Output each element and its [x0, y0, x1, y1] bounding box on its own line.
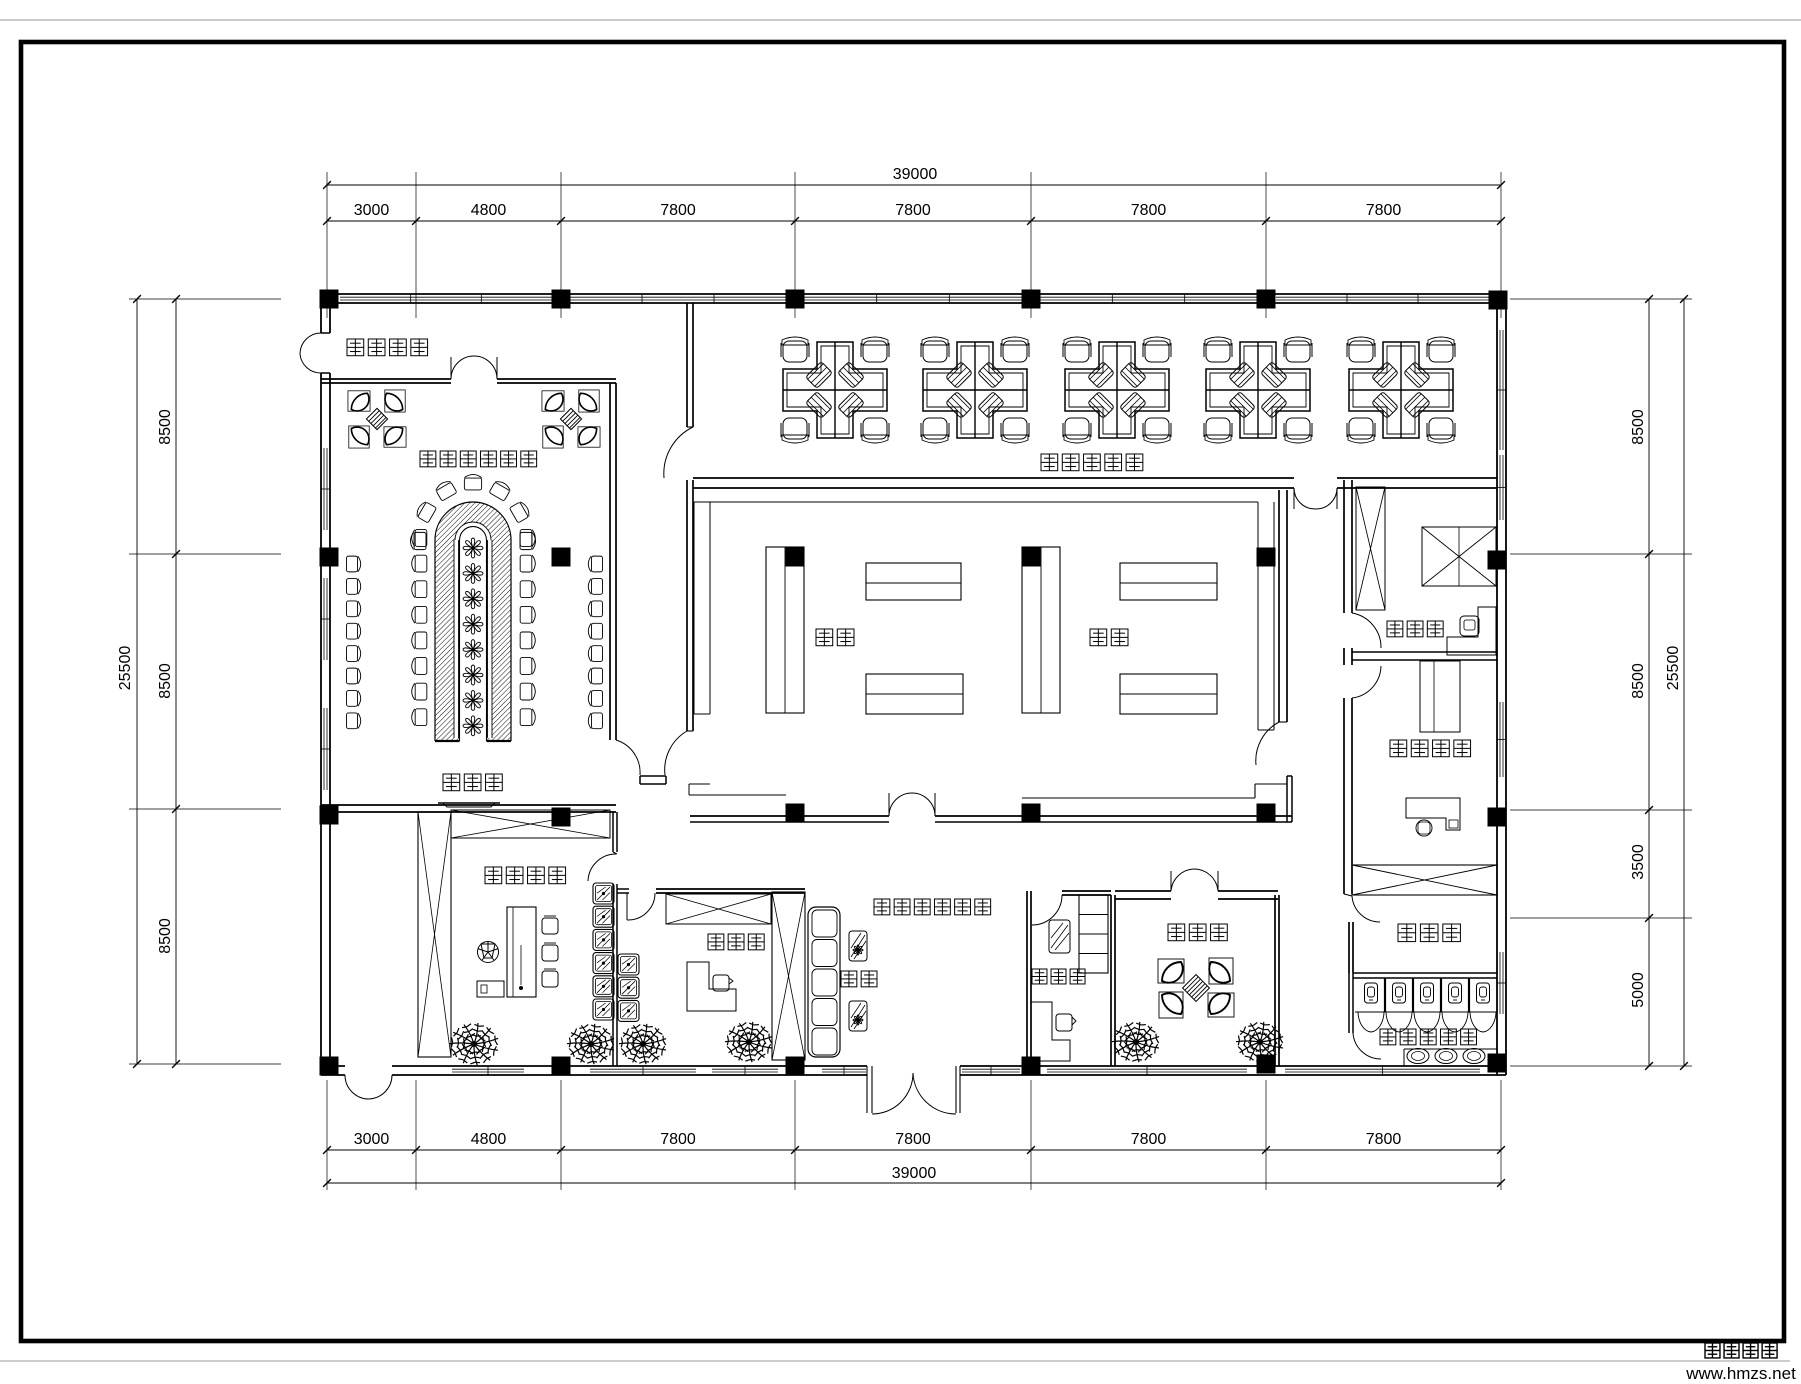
svg-text:3000: 3000 [354, 202, 390, 219]
svg-text:39000: 39000 [892, 1165, 937, 1182]
svg-text:7800: 7800 [895, 202, 931, 219]
svg-text:4800: 4800 [471, 202, 507, 219]
svg-text:7800: 7800 [895, 1131, 931, 1148]
svg-text:39000: 39000 [893, 166, 938, 183]
svg-text:7800: 7800 [1131, 202, 1167, 219]
svg-text:3000: 3000 [354, 1131, 390, 1148]
svg-text:8500: 8500 [1630, 663, 1647, 699]
svg-text:25500: 25500 [117, 646, 134, 691]
svg-text:7800: 7800 [1366, 1131, 1402, 1148]
svg-text:25500: 25500 [1665, 646, 1682, 691]
svg-text:8500: 8500 [1630, 409, 1647, 445]
svg-text:8500: 8500 [157, 918, 174, 954]
svg-text:7800: 7800 [1366, 202, 1402, 219]
svg-text:5000: 5000 [1630, 972, 1647, 1008]
svg-text:8500: 8500 [157, 409, 174, 445]
svg-text:4800: 4800 [471, 1131, 507, 1148]
svg-text:7800: 7800 [660, 202, 696, 219]
svg-text:www.hmzs.net: www.hmzs.net [1685, 1364, 1796, 1383]
svg-text:8500: 8500 [157, 663, 174, 699]
svg-text:7800: 7800 [660, 1131, 696, 1148]
svg-text:3500: 3500 [1630, 844, 1647, 880]
svg-text:7800: 7800 [1131, 1131, 1167, 1148]
